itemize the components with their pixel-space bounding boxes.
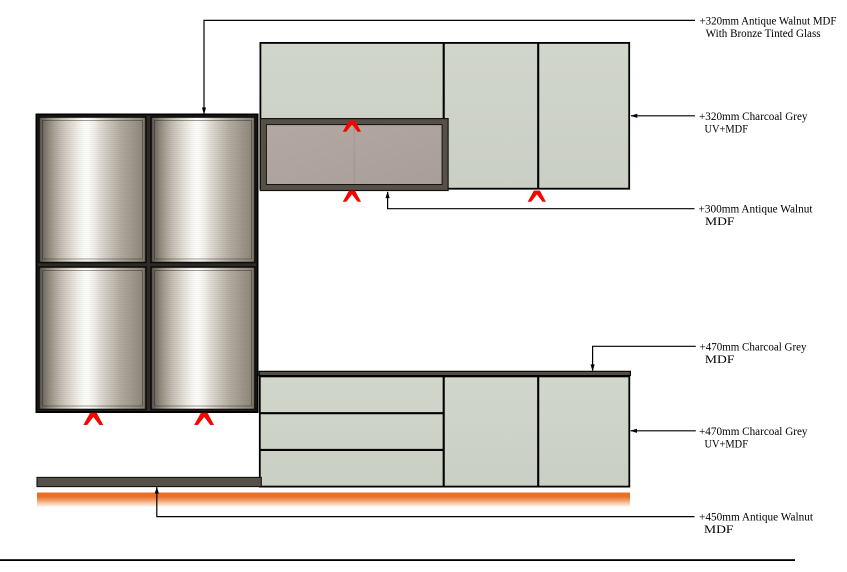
svg-text:With Bronze Tinted Glass: With Bronze Tinted Glass — [706, 26, 821, 40]
svg-text:UV+MDF: UV+MDF — [705, 121, 749, 135]
svg-text:MDF: MDF — [704, 522, 734, 536]
svg-text:MDF: MDF — [705, 352, 735, 366]
svg-text:UV+MDF: UV+MDF — [705, 436, 749, 450]
svg-text:MDF: MDF — [705, 214, 735, 228]
